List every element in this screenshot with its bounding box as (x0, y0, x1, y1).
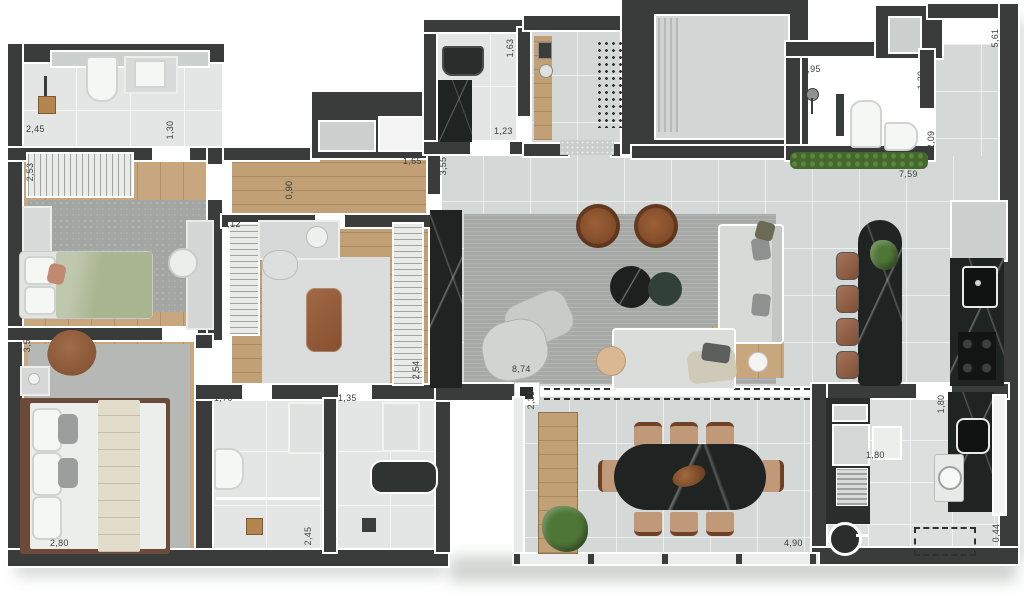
dim-bath3-depth: 2,45 (327, 519, 337, 553)
dim-laundry-width: 1,80 (866, 450, 885, 460)
pillow-gray (58, 414, 78, 444)
pillow-gray (58, 458, 78, 488)
door-bedroom1-top (152, 148, 190, 160)
tv-wall-panel (430, 210, 462, 388)
console-decor (538, 42, 552, 59)
shower-tray-icon (362, 518, 376, 532)
bar-stool (836, 252, 859, 280)
dim-closet-width: 3,12 (222, 219, 241, 229)
balcony-plant (542, 506, 588, 552)
balcony-glass-front (512, 552, 820, 566)
dining-chair (670, 512, 698, 536)
door-lavabo-side (518, 116, 530, 142)
balcony-glass-left (512, 396, 525, 560)
niche-topright (888, 16, 922, 54)
dining-chair (634, 512, 662, 536)
dim-bath2-depth: 2,45 (303, 519, 313, 553)
dim-balcony-width: 4,90 (784, 538, 803, 548)
lounge-armchair-brown (634, 204, 678, 248)
floor-corridor-right (934, 44, 1000, 156)
shaft-niche-left (318, 120, 376, 152)
refrigerator (950, 200, 1008, 262)
pillow (24, 286, 56, 315)
wall-laundry-left (812, 384, 826, 564)
door-master-side (196, 348, 212, 386)
dim-bath1-width: 2,45 (26, 124, 45, 134)
dim-bedroom1-wardrobe: 2,53 (25, 155, 35, 189)
dining-chair (706, 422, 734, 446)
dining-chair (670, 422, 698, 446)
doormat-grate (596, 40, 622, 128)
louver-vent (836, 468, 868, 506)
wall-bath3-right (436, 385, 450, 552)
door-bedroom1-side (208, 164, 222, 200)
bed-runner-blanket (98, 400, 140, 552)
dim-living-width: 8,74 (512, 364, 531, 374)
dim-lavabo-depth: 1,63 (505, 31, 515, 65)
sofa-cushion (751, 293, 771, 317)
bidet (884, 122, 918, 151)
elevator-doors (658, 18, 678, 132)
bar-stool (836, 351, 859, 379)
dining-chair (706, 512, 734, 536)
wall-entry-top (524, 16, 632, 30)
shower-arm-icon (811, 98, 813, 114)
dim-hall-width: 0,90 (284, 173, 294, 207)
side-table-tan (596, 346, 626, 376)
sink (134, 60, 166, 88)
floor-ball-lamp (748, 352, 768, 372)
toilet-black (442, 46, 484, 76)
threshold-stone (560, 140, 614, 155)
wardrobe-closet-left (228, 222, 260, 336)
cooktop (958, 332, 996, 380)
equipment-dashed-area (914, 527, 976, 556)
washing-machine-door (938, 466, 962, 490)
laundry-washtub (828, 522, 862, 556)
toilet (850, 100, 882, 148)
shaft-niche-right (378, 116, 428, 152)
dim-kitchen-passage: 1,80 (936, 387, 946, 421)
wall-bath4-partition (836, 94, 844, 136)
washtub-spout (856, 534, 868, 537)
bathtub-dark (370, 460, 438, 494)
lounge-armchair-brown (576, 204, 620, 248)
coffee-table-dark (610, 266, 652, 308)
nightstand-lamp (28, 373, 40, 385)
door-bath2 (242, 385, 272, 399)
vanity-counter (288, 402, 324, 454)
laundry-shelf-box (832, 424, 870, 466)
shower-tray-icon (38, 96, 56, 114)
toilet (214, 448, 244, 490)
dim-lavabo-width: 1,23 (494, 126, 513, 136)
dim-top-wall-length: 7,59 (899, 169, 918, 179)
coffee-table-dark-2 (648, 272, 682, 306)
vanity-chair (262, 250, 298, 280)
dim-master-depth: 3,50 (22, 326, 32, 360)
lavabo-counter (438, 80, 472, 142)
island-plant (870, 240, 898, 270)
ottoman-leather (306, 288, 342, 352)
shower-screen (216, 497, 320, 500)
bar-stool (836, 318, 859, 346)
dim-bath3-width: 1,35 (338, 393, 357, 403)
dim-corridor-right-length: 5,61 (990, 21, 1000, 55)
laundry-sink (956, 418, 990, 454)
door-lavabo (470, 142, 510, 154)
toilet (86, 56, 118, 102)
wall-under-elevator (632, 146, 788, 158)
wall-lavabo-left (424, 20, 436, 154)
dim-closet-depth: 2,54 (411, 353, 421, 387)
pillow (32, 496, 62, 540)
wall-bath4-left (786, 50, 800, 160)
floor-plan: 2,45 1,30 2,53 3,12 0,90 1,65 3,55 1,63 … (0, 0, 1024, 602)
console-bowl (539, 64, 553, 78)
laundry-column (992, 394, 1007, 516)
wall-closet-baths (196, 385, 448, 399)
wall-top-right (928, 4, 1010, 18)
dim-bath4-width: 1,20 (916, 63, 926, 97)
sliding-door-track-2 (544, 398, 810, 400)
dim-balcony-depth: 2,33 (526, 383, 536, 417)
kitchen-sink (962, 266, 998, 308)
vanity-counter (382, 402, 420, 452)
laundry-shelf-box (832, 404, 868, 422)
dim-laundry-niche: 0,44 (991, 516, 1001, 550)
dim-bath2-width: 1,70 (214, 393, 233, 403)
dim-bath4-shower: 1,95 (802, 64, 821, 74)
sofa-cushion-dark (701, 342, 731, 364)
single-bed-duvet (56, 252, 152, 318)
bar-stool (836, 285, 859, 313)
shower-tray-icon (246, 518, 263, 535)
vanity-mirror (306, 226, 328, 248)
plant-shelf-strip (790, 152, 928, 169)
dim-bath1-door: 1,30 (165, 113, 175, 147)
dining-chair (634, 422, 662, 446)
dim-corridor-right-width: 2,09 (926, 123, 936, 157)
shower-head-icon (44, 76, 47, 96)
wardrobe-bedroom1 (26, 152, 134, 198)
door-laundry (916, 384, 952, 398)
kitchen-faucet (975, 280, 981, 286)
dim-entry-depth: 3,55 (438, 149, 448, 183)
dim-hall-length: 1,65 (403, 156, 422, 166)
desk-chair (168, 248, 198, 278)
dim-master-width: 2,80 (50, 538, 69, 548)
